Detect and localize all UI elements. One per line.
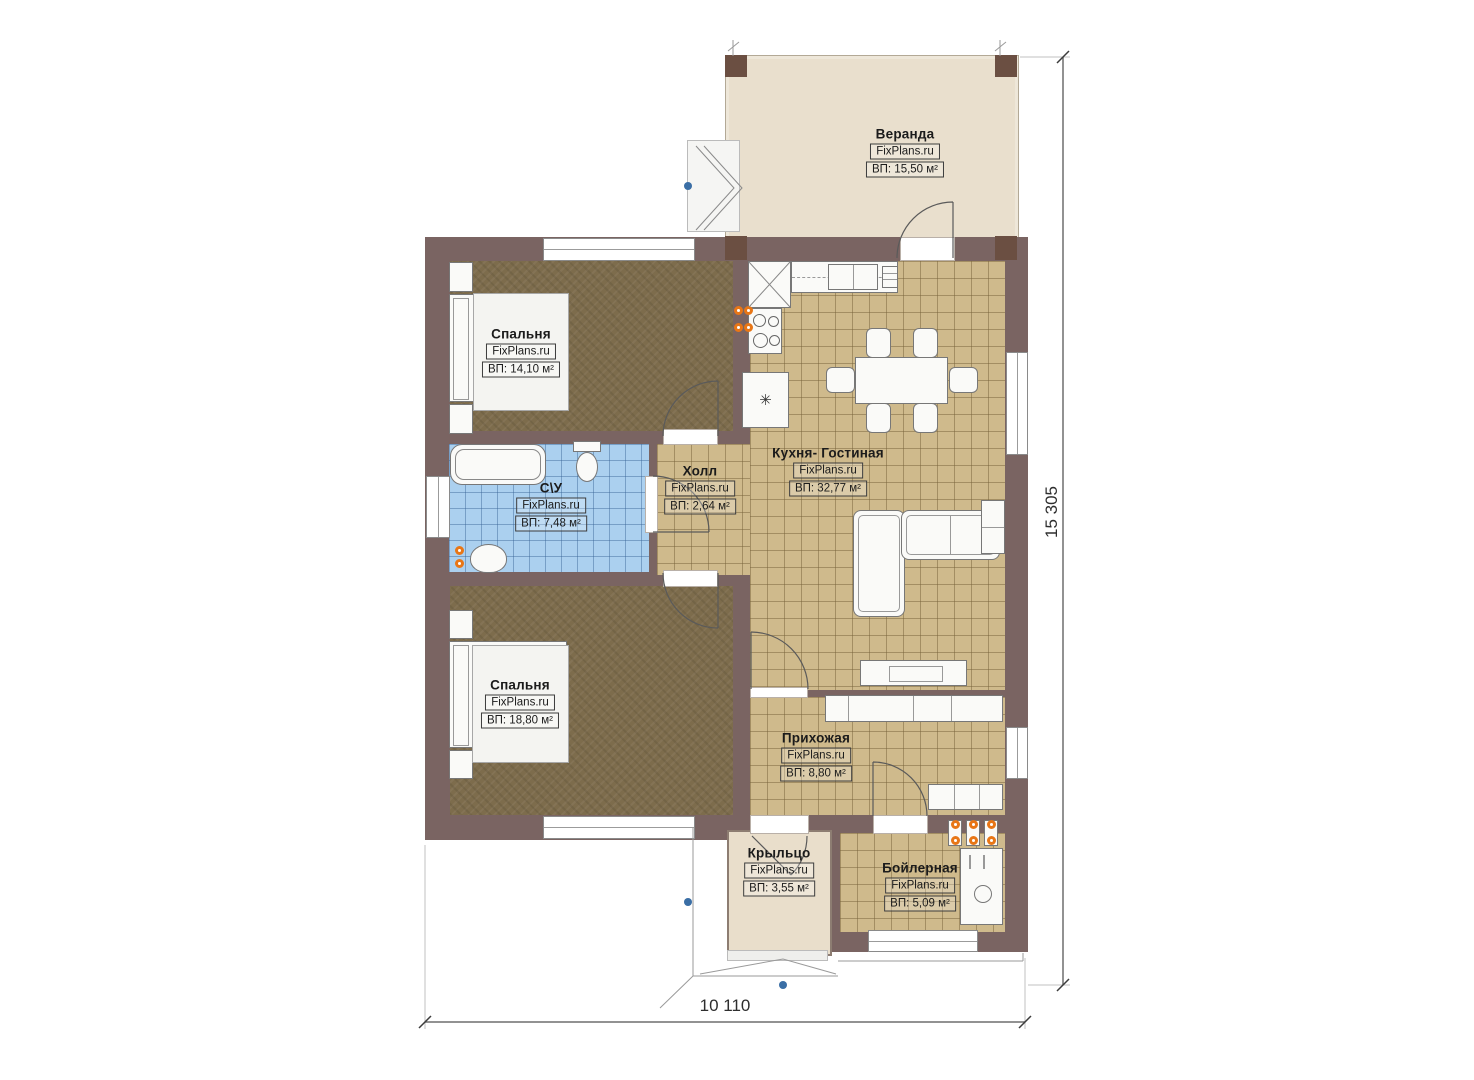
porch-step	[727, 950, 828, 961]
room-area: ВП: 5,09 м²	[884, 896, 956, 912]
room-label-kitchen: Кухня- Гостиная FixPlans.ru ВП: 32,77 м²	[772, 446, 884, 497]
radiator-icon	[969, 836, 978, 845]
chair	[949, 367, 978, 393]
watermark: FixPlans.ru	[870, 144, 940, 160]
window	[868, 930, 978, 952]
toilet	[573, 441, 601, 452]
water-heater: ✳	[742, 372, 789, 428]
boiler-door-opening	[873, 815, 928, 834]
tv-stand	[860, 660, 967, 686]
nightstand	[449, 404, 473, 434]
bedroom2-door-opening	[663, 570, 718, 587]
dish-rack	[882, 266, 898, 288]
radiator-icon	[951, 836, 960, 845]
room-label-hall: Холл FixPlans.ru ВП: 2,64 м²	[664, 464, 736, 515]
nightstand	[449, 610, 473, 639]
watermark: FixPlans.ru	[486, 344, 556, 360]
radiator-icon	[987, 820, 996, 829]
window	[1006, 727, 1028, 779]
room-label-porch: Крыльцо FixPlans.ru ВП: 3,55 м²	[743, 846, 815, 897]
entrance-door-opening	[750, 815, 809, 834]
radiator-icon	[455, 559, 464, 568]
watermark: FixPlans.ru	[485, 695, 555, 711]
radiator-icon	[455, 546, 464, 555]
watermark: FixPlans.ru	[781, 748, 851, 764]
chair	[866, 403, 891, 433]
chair	[866, 328, 891, 358]
wall-cabinet	[981, 500, 1005, 554]
radiator-icon	[987, 836, 996, 845]
chair	[913, 403, 938, 433]
living-door-opening	[750, 687, 808, 698]
nightstand	[449, 262, 473, 292]
sink	[470, 544, 507, 573]
wardrobe	[825, 695, 1003, 722]
toilet-bowl	[576, 452, 598, 482]
room-area: ВП: 2,64 м²	[664, 499, 736, 515]
window	[543, 816, 695, 839]
window	[1006, 352, 1028, 455]
radiator-icon	[744, 323, 753, 332]
dimension-height: 15 305	[1042, 486, 1062, 538]
room-label-boiler: Бойлерная FixPlans.ru ВП: 5,09 м²	[882, 861, 958, 912]
fridge-cabinet	[748, 261, 791, 308]
watermark: FixPlans.ru	[885, 878, 955, 894]
room-area: ВП: 7,48 м²	[515, 516, 587, 532]
room-area: ВП: 15,50 м²	[866, 162, 944, 178]
room-area: ВП: 14,10 м²	[482, 362, 560, 378]
veranda-post	[725, 55, 747, 77]
radiator-icon	[734, 306, 743, 315]
bathroom-door-opening	[645, 476, 658, 533]
kitchen-sink	[828, 264, 878, 290]
sofa	[853, 510, 905, 617]
veranda-door-opening	[900, 237, 955, 261]
heater-symbol-icon: ✳	[759, 391, 772, 409]
room-label-bedroom2: Спальня FixPlans.ru ВП: 18,80 м²	[481, 678, 559, 729]
radiator-icon	[734, 323, 743, 332]
room-area: ВП: 3,55 м²	[743, 881, 815, 897]
nightstand	[449, 750, 473, 779]
watermark: FixPlans.ru	[744, 863, 814, 879]
watermark: FixPlans.ru	[665, 481, 735, 497]
watermark: FixPlans.ru	[793, 463, 863, 479]
dimension-width: 10 110	[700, 996, 751, 1016]
room-label-hallway: Прихожая FixPlans.ru ВП: 8,80 м²	[780, 731, 852, 782]
room-area: ВП: 18,80 м²	[481, 713, 559, 729]
room-label-veranda: Веранда FixPlans.ru ВП: 15,50 м²	[866, 127, 944, 178]
window	[543, 238, 695, 261]
radiator-icon	[744, 306, 753, 315]
dining-table	[855, 357, 948, 404]
veranda-post	[725, 236, 747, 260]
bedroom1-door-opening	[663, 429, 718, 445]
veranda-post	[995, 236, 1017, 260]
stove	[748, 308, 782, 354]
veranda-steps	[687, 140, 740, 232]
watermark: FixPlans.ru	[516, 498, 586, 514]
marker-dot-icon	[684, 898, 692, 906]
window	[426, 476, 450, 538]
room-label-bathroom: С\У FixPlans.ru ВП: 7,48 м²	[515, 481, 587, 532]
floor-plan: ✳	[0, 0, 1474, 1080]
chair	[913, 328, 938, 358]
room-label-bedroom1: Спальня FixPlans.ru ВП: 14,10 м²	[482, 327, 560, 378]
chair	[826, 367, 855, 393]
radiator-icon	[951, 820, 960, 829]
veranda-post	[995, 55, 1017, 77]
room-area: ВП: 8,80 м²	[780, 766, 852, 782]
radiator-icon	[969, 820, 978, 829]
bathtub	[450, 444, 546, 485]
marker-dot-icon	[779, 981, 787, 989]
boiler-unit	[960, 848, 1003, 925]
room-area: ВП: 32,77 м²	[789, 481, 867, 497]
shoe-cabinet	[928, 784, 1003, 810]
